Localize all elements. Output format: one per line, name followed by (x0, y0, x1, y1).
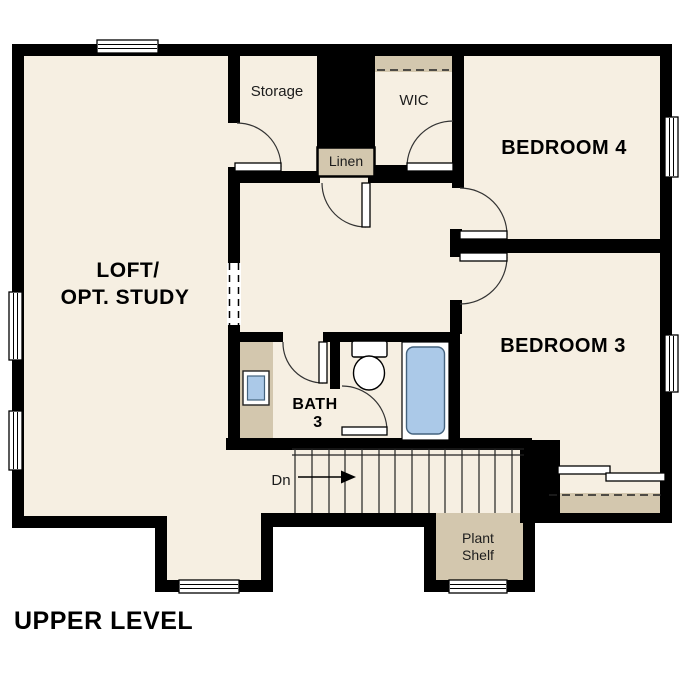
loft-hall-opening (227, 263, 241, 325)
floor-plan: Storage WIC Linen BEDROOM 4 LOFT/ OPT. S… (0, 0, 687, 687)
toilet-bowl (354, 356, 385, 390)
window-right-bedroom3 (665, 335, 678, 392)
window-top (97, 40, 158, 53)
floor-plan-page: Storage WIC Linen BEDROOM 4 LOFT/ OPT. S… (0, 0, 687, 687)
window-right-bedroom4 (665, 117, 678, 177)
linen-label: Linen (329, 153, 363, 169)
bathtub (402, 342, 449, 440)
loft-room-label-line2: OPT. STUDY (61, 286, 190, 309)
wic-room-label: WIC (399, 92, 428, 109)
toilet-tank (352, 341, 387, 357)
bypass-panel (606, 473, 665, 481)
door-leaf (362, 183, 370, 227)
door-leaf (319, 342, 327, 383)
bedroom3-room-label: BEDROOM 3 (500, 335, 626, 357)
window-bottom-plant-shelf (449, 580, 507, 593)
door-leaf (460, 253, 507, 261)
door-leaf (235, 163, 281, 171)
toilet (352, 341, 387, 390)
sink-basin (248, 376, 265, 400)
stairs-down-label: Dn (271, 472, 290, 489)
window-left-upper (9, 292, 22, 360)
window-left-lower (9, 411, 22, 470)
storage-room-label: Storage (251, 83, 304, 100)
bath-room-label-line2: 3 (313, 414, 322, 431)
bedroom4-room-label: BEDROOM 4 (501, 137, 627, 159)
vanity-sink (243, 371, 269, 405)
door-leaf (407, 163, 453, 171)
plant-shelf-label-line2: Shelf (462, 547, 494, 563)
loft-room-label-line1: LOFT/ (96, 259, 159, 282)
page-title: UPPER LEVEL (14, 607, 193, 635)
tub-basin (407, 347, 445, 434)
bath-room-label-line1: BATH (292, 396, 337, 413)
door-leaf (460, 231, 507, 239)
plant-shelf-label-line1: Plant (462, 530, 494, 546)
door-leaf (342, 427, 387, 435)
bypass-panel (558, 466, 610, 474)
window-bottom-loft (179, 580, 239, 593)
